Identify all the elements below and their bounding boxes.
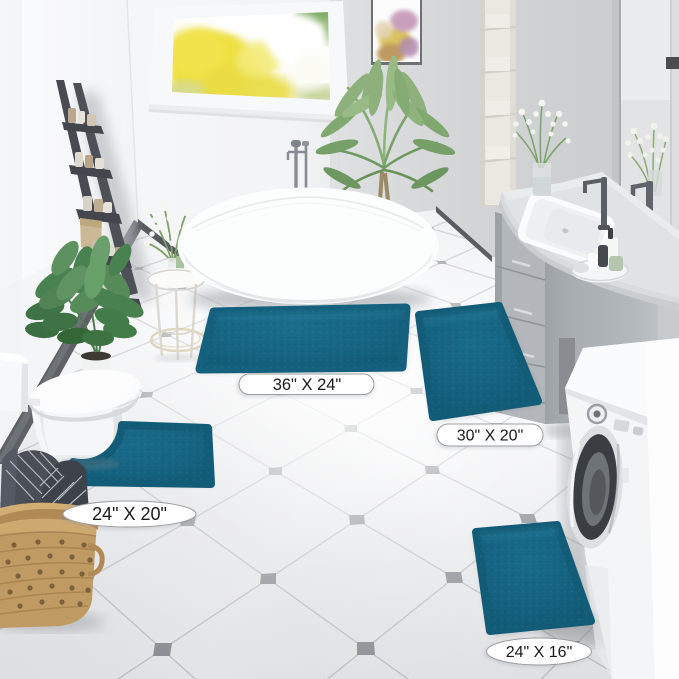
svg-text:24" X 16": 24" X 16"	[506, 644, 573, 661]
svg-text:30" X 20": 30" X 20"	[457, 428, 524, 445]
svg-text:24" X 20": 24" X 20"	[92, 504, 167, 524]
svg-text:36" X 24": 36" X 24"	[273, 376, 342, 394]
